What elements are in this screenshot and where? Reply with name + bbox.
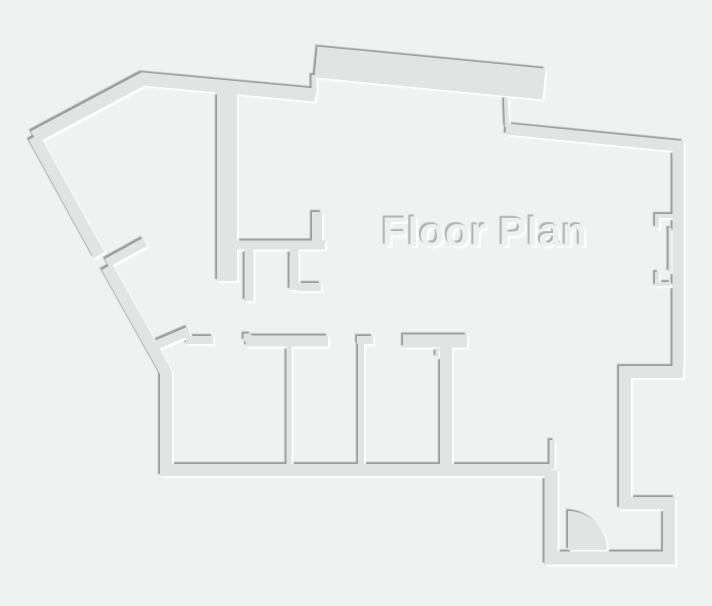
- floor-plan-title: Floor Plan: [382, 209, 587, 256]
- floor-plan-canvas: Floor Plan: [0, 0, 712, 606]
- wall-fill-layer: [34, 62, 683, 558]
- floor-plan-drawing: [0, 0, 712, 606]
